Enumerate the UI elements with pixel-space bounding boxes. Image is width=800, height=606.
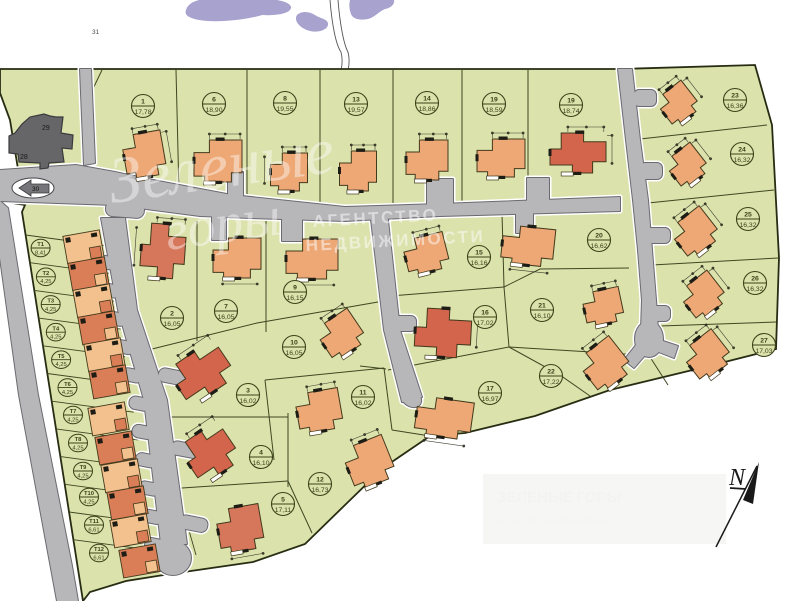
svg-text:20: 20 <box>595 232 603 239</box>
svg-text:4,25: 4,25 <box>72 445 83 451</box>
svg-text:T9: T9 <box>80 465 88 471</box>
svg-text:17,11: 17,11 <box>275 507 292 514</box>
svg-text:29: 29 <box>42 125 50 132</box>
svg-text:16,02: 16,02 <box>239 398 256 405</box>
svg-text:27: 27 <box>760 337 768 344</box>
svg-text:N: N <box>728 465 747 491</box>
svg-text:19,57: 19,57 <box>347 107 364 114</box>
svg-text:4,25: 4,25 <box>67 417 78 423</box>
svg-text:16,15: 16,15 <box>286 295 303 302</box>
svg-text:16,32: 16,32 <box>739 222 756 229</box>
svg-text:9: 9 <box>293 284 297 291</box>
svg-text:22: 22 <box>547 368 555 375</box>
svg-text:T3: T3 <box>47 299 55 305</box>
svg-text:21: 21 <box>538 302 546 309</box>
svg-text:4,25: 4,25 <box>40 279 51 285</box>
svg-text:10: 10 <box>290 339 298 346</box>
svg-text:ЗЕЛЕНЫЕ ГОРЫ: ЗЕЛЕНЫЕ ГОРЫ <box>497 489 621 506</box>
svg-text:8: 8 <box>283 95 287 102</box>
svg-text:16,10: 16,10 <box>533 313 550 320</box>
svg-text:4,25: 4,25 <box>83 499 94 505</box>
svg-text:18,74: 18,74 <box>562 108 579 115</box>
svg-text:17,02: 17,02 <box>476 320 493 327</box>
svg-text:16,05: 16,05 <box>163 321 180 328</box>
svg-text:16,62: 16,62 <box>590 243 607 250</box>
svg-text:агентство недвижимости: агентство недвижимости <box>497 516 612 527</box>
svg-text:4,25: 4,25 <box>55 362 66 368</box>
svg-text:5: 5 <box>281 496 285 503</box>
svg-text:17,03: 17,03 <box>755 348 772 355</box>
svg-text:T1: T1 <box>37 242 45 248</box>
svg-text:26: 26 <box>751 275 759 282</box>
svg-text:16,16: 16,16 <box>470 260 487 267</box>
svg-text:4,25: 4,25 <box>62 390 73 396</box>
svg-text:T7: T7 <box>70 409 77 415</box>
svg-text:T6: T6 <box>64 382 72 388</box>
svg-text:17,78: 17,78 <box>134 109 151 116</box>
svg-text:4,25: 4,25 <box>45 307 56 313</box>
svg-text:17: 17 <box>486 385 494 392</box>
svg-text:T5: T5 <box>58 354 66 360</box>
svg-text:24: 24 <box>738 146 746 153</box>
svg-text:16,36: 16,36 <box>726 103 743 110</box>
svg-text:T10: T10 <box>84 491 94 497</box>
svg-text:T11: T11 <box>89 519 99 525</box>
svg-text:12: 12 <box>316 476 324 483</box>
svg-text:23: 23 <box>731 92 739 99</box>
svg-text:6,61: 6,61 <box>93 555 104 561</box>
svg-text:16,05: 16,05 <box>217 314 234 321</box>
svg-text:16,32: 16,32 <box>733 157 750 164</box>
svg-text:8,41: 8,41 <box>35 250 46 256</box>
svg-text:18,86: 18,86 <box>418 106 435 113</box>
svg-text:6,61: 6,61 <box>88 527 99 533</box>
svg-text:19: 19 <box>567 97 575 104</box>
svg-text:3: 3 <box>246 387 250 394</box>
svg-text:T8: T8 <box>75 437 83 443</box>
svg-text:4,25: 4,25 <box>77 473 88 479</box>
svg-text:16,10: 16,10 <box>252 460 269 467</box>
svg-text:19,55: 19,55 <box>276 106 293 113</box>
svg-text:15: 15 <box>475 249 483 256</box>
svg-text:14: 14 <box>423 95 431 102</box>
svg-text:17,22: 17,22 <box>542 379 559 386</box>
svg-text:13: 13 <box>352 96 360 103</box>
svg-text:16,02: 16,02 <box>354 400 371 407</box>
svg-text:19: 19 <box>490 96 498 103</box>
svg-text:16,97: 16,97 <box>481 396 498 403</box>
svg-text:1: 1 <box>141 98 145 105</box>
svg-text:25: 25 <box>744 211 752 218</box>
svg-text:16,73: 16,73 <box>311 487 328 494</box>
svg-text:T2: T2 <box>43 271 50 277</box>
svg-text:T12: T12 <box>94 547 104 553</box>
svg-text:7: 7 <box>224 303 228 310</box>
svg-text:16,05: 16,05 <box>285 350 302 357</box>
svg-text:18,59: 18,59 <box>485 107 502 114</box>
svg-text:16,32: 16,32 <box>746 286 763 293</box>
svg-text:18,90: 18,90 <box>205 107 222 114</box>
svg-text:2: 2 <box>170 310 174 317</box>
svg-text:4: 4 <box>259 449 263 456</box>
svg-text:11: 11 <box>359 389 366 396</box>
svg-text:31: 31 <box>92 29 100 36</box>
svg-text:28: 28 <box>20 154 28 161</box>
svg-text:30: 30 <box>32 186 40 193</box>
svg-text:16: 16 <box>481 309 489 316</box>
svg-text:6: 6 <box>212 96 216 103</box>
svg-text:4,25: 4,25 <box>50 335 61 341</box>
svg-text:T4: T4 <box>52 326 60 332</box>
